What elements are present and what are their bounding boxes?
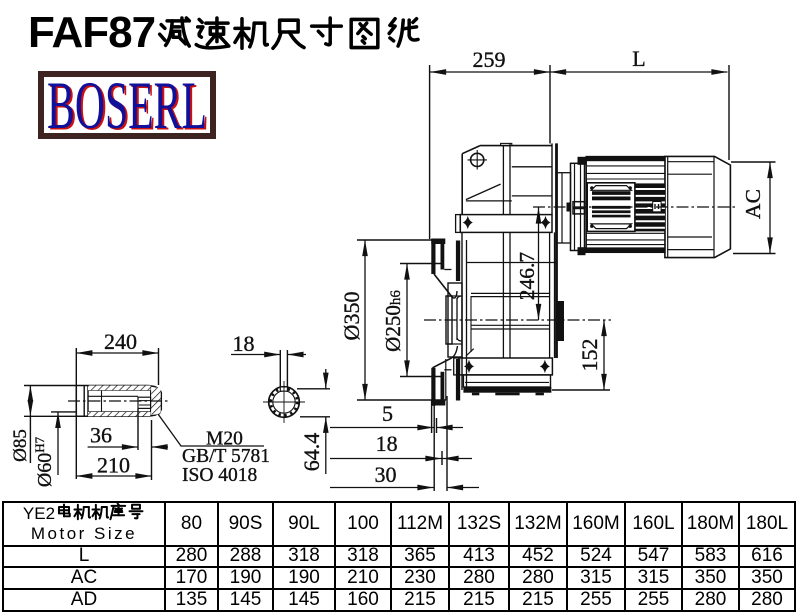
svg-text:18: 18: [376, 431, 398, 456]
svg-text:30: 30: [375, 462, 397, 487]
svg-text:240: 240: [104, 329, 137, 354]
svg-text:18: 18: [233, 331, 255, 356]
svg-text:259: 259: [473, 47, 506, 72]
svg-text:36: 36: [90, 423, 112, 448]
svg-text:L: L: [632, 46, 645, 71]
svg-text:Ø250h6: Ø250h6: [381, 290, 405, 352]
svg-text:M20: M20: [206, 429, 243, 450]
svg-text:210: 210: [97, 453, 130, 478]
svg-text:Ø85: Ø85: [10, 429, 31, 462]
svg-text:AC: AC: [741, 189, 765, 219]
svg-text:64.4: 64.4: [299, 433, 324, 472]
svg-text:Ø60H7: Ø60H7: [32, 436, 56, 487]
svg-text:ISO 4018: ISO 4018: [182, 465, 257, 486]
svg-text:152: 152: [577, 339, 602, 372]
svg-text:BOSERL: BOSERL: [47, 77, 207, 133]
svg-text:Ø350: Ø350: [339, 292, 364, 341]
svg-text:5: 5: [382, 401, 393, 426]
